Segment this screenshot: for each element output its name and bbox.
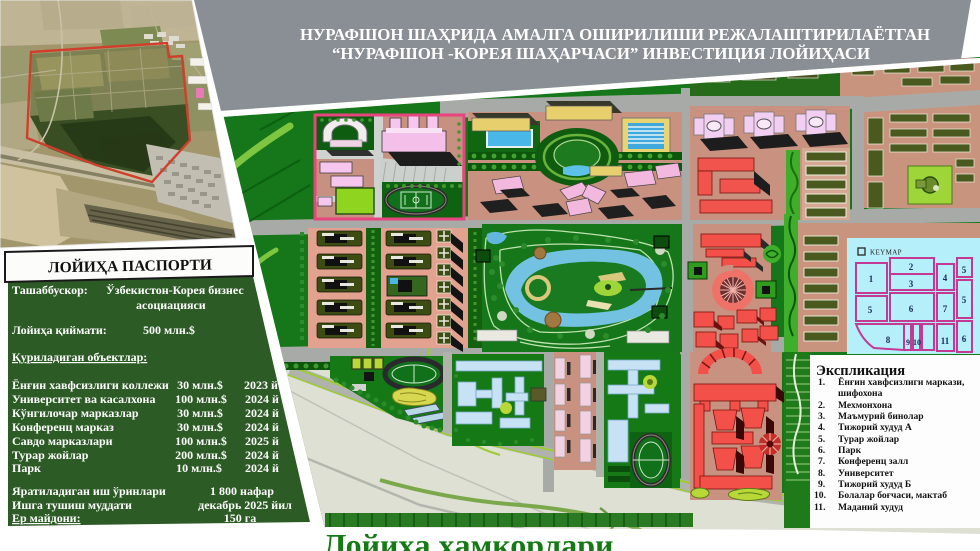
svg-text:1.: 1. [818, 377, 825, 388]
svg-text:шифохона: шифохона [838, 388, 883, 399]
svg-text:6.: 6. [818, 445, 825, 456]
svg-text:500 млн.$: 500 млн.$ [143, 323, 195, 337]
svg-text:ЛОЙИҲА ПАСПОРТИ: ЛОЙИҲА ПАСПОРТИ [48, 257, 212, 277]
svg-text:Кўнгилочар марказлар: Кўнгилочар марказлар [12, 406, 139, 420]
svg-text:Ишга тушиш муддати: Ишга тушиш муддати [12, 498, 132, 512]
svg-text:6: 6 [962, 334, 967, 344]
svg-text:2024 й: 2024 й [245, 448, 279, 462]
svg-text:7.: 7. [818, 456, 825, 467]
svg-text:Маданий худуд: Маданий худуд [838, 502, 903, 513]
svg-text:Маъмурий бинолар: Маъмурий бинолар [838, 411, 924, 422]
svg-text:5: 5 [868, 305, 873, 315]
svg-text:150 га: 150 га [224, 511, 256, 525]
svg-text:Қуриладиган объектлар:: Қуриладиган объектлар: [12, 350, 147, 364]
svg-text:Тижорий худуд А: Тижорий худуд А [838, 422, 912, 433]
svg-text:3.: 3. [818, 411, 825, 422]
svg-text:Ёнғин хавфсизлиги маркази,: Ёнғин хавфсизлиги маркази, [838, 375, 965, 388]
svg-text:8: 8 [886, 335, 891, 345]
svg-text:9: 9 [906, 338, 910, 347]
svg-text:Парк: Парк [12, 461, 41, 475]
svg-text:Болалар боғчаси, мактаб: Болалар боғчаси, мактаб [838, 490, 947, 501]
svg-text:1: 1 [869, 274, 874, 284]
svg-text:5: 5 [962, 295, 967, 305]
svg-text:Мехмонхона: Мехмонхона [838, 400, 892, 411]
svg-text:Университет ва касалхона: Университет ва касалхона [12, 392, 155, 406]
svg-text:10: 10 [913, 338, 921, 347]
svg-text:11.: 11. [814, 502, 825, 513]
svg-text:2: 2 [909, 262, 914, 272]
svg-text:100 млн.$: 100 млн.$ [175, 392, 227, 406]
svg-text:Савдо марказлари: Савдо марказлари [12, 434, 113, 448]
svg-text:Лойиҳа қиймати:: Лойиҳа қиймати: [12, 323, 107, 337]
svg-text:1 800 нафар: 1 800 нафар [210, 484, 274, 498]
svg-text:2024 й: 2024 й [245, 420, 279, 434]
svg-text:Тижорий худуд Б: Тижорий худуд Б [838, 479, 911, 490]
svg-text:11: 11 [941, 336, 950, 346]
svg-text:4.: 4. [818, 422, 825, 433]
svg-text:KEYMAP: KEYMAP [870, 249, 902, 257]
svg-text:Ер майдони:: Ер майдони: [12, 511, 81, 525]
svg-text:2024 й: 2024 й [245, 406, 279, 420]
svg-text:Ўзбекистон-Корея бизнес: Ўзбекистон-Корея бизнес [106, 283, 244, 297]
svg-text:5: 5 [962, 265, 967, 275]
svg-text:Турар жойлар: Турар жойлар [838, 434, 899, 445]
svg-text:Парк: Парк [838, 445, 862, 456]
svg-text:Конференц залл: Конференц залл [838, 456, 909, 467]
svg-text:2024 й: 2024 й [245, 392, 279, 406]
svg-text:2023 й: 2023 й [244, 378, 278, 392]
svg-text:Лойиҳа ҳамкорлари: Лойиҳа ҳамкорлари [323, 527, 614, 551]
svg-text:7: 7 [943, 304, 948, 314]
svg-text:100 млн.$: 100 млн.$ [175, 434, 227, 448]
svg-text:Ёнғин хавфсизлиги коллежи: Ёнғин хавфсизлиги коллежи [12, 378, 169, 392]
svg-text:НУРАФШОН ШАҲРИДА АМАЛГА ОШИРИЛ: НУРАФШОН ШАҲРИДА АМАЛГА ОШИРИЛИШИ РЕЖАЛА… [300, 25, 930, 44]
svg-text:2024 й: 2024 й [245, 461, 279, 475]
svg-text:4: 4 [943, 273, 948, 283]
svg-text:Конференц марказ: Конференц марказ [12, 420, 114, 434]
svg-text:2.: 2. [818, 400, 825, 411]
svg-text:9.: 9. [818, 479, 825, 490]
svg-text:200 млн.$: 200 млн.$ [175, 448, 227, 462]
svg-text:6: 6 [909, 304, 914, 314]
svg-text:5.: 5. [818, 434, 825, 445]
svg-text:2025 й: 2025 й [245, 434, 279, 448]
svg-text:Яратиладиган иш ўринлари: Яратиладиган иш ўринлари [12, 484, 166, 498]
svg-text:30 млн.$: 30 млн.$ [177, 406, 223, 420]
svg-text:Турар жойлар: Турар жойлар [12, 448, 89, 462]
svg-text:декабрь 2025 йил: декабрь 2025 йил [198, 498, 292, 512]
svg-text:30 млн.$: 30 млн.$ [177, 420, 223, 434]
svg-text:30 млн.$: 30 млн.$ [177, 378, 223, 392]
svg-text:10 млн.$: 10 млн.$ [176, 461, 222, 475]
svg-text:Ташаббускор:: Ташаббускор: [12, 283, 88, 297]
svg-text:“НУРАФШОН -КОРЕЯ ШАҲАРЧАСИ” ИН: “НУРАФШОН -КОРЕЯ ШАҲАРЧАСИ” ИНВЕСТИЦИЯ Л… [332, 44, 870, 63]
svg-text:3: 3 [909, 279, 914, 289]
svg-text:8.: 8. [818, 468, 825, 479]
svg-text:асоциацияси: асоциацияси [136, 298, 206, 312]
svg-text:10.: 10. [814, 490, 826, 501]
svg-text:Университет: Университет [838, 468, 894, 479]
